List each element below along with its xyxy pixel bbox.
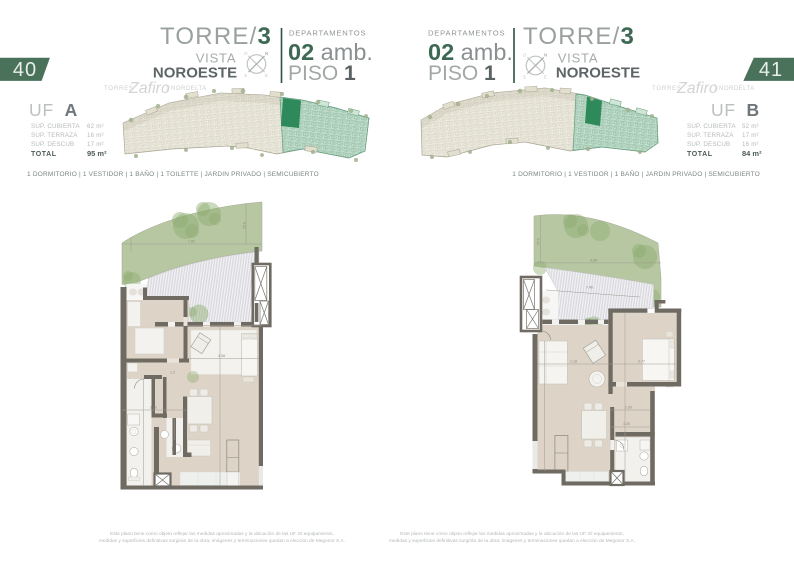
svg-text:S: S xyxy=(244,73,247,78)
svg-text:SUP. TERRAZA: SUP. TERRAZA xyxy=(687,132,734,139)
svg-text:17 m²: 17 m² xyxy=(742,132,759,139)
svg-text:|: | xyxy=(714,83,716,92)
svg-text:2.60: 2.60 xyxy=(625,406,632,410)
svg-text:7.46: 7.46 xyxy=(586,286,593,290)
svg-text:SUP. CUBIERTA: SUP. CUBIERTA xyxy=(31,123,80,130)
svg-text:NORDELTA: NORDELTA xyxy=(171,86,207,92)
svg-text:4.08: 4.08 xyxy=(218,354,225,358)
svg-text:N: N xyxy=(265,51,268,56)
svg-text:1.10: 1.10 xyxy=(150,406,157,410)
svg-text:95 m²: 95 m² xyxy=(87,149,107,158)
svg-text:NOROESTE: NOROESTE xyxy=(153,65,237,82)
svg-text:1 DORMITORIO | 1 VESTIDOR | 1: 1 DORMITORIO | 1 VESTIDOR | 1 BAÑO | JAR… xyxy=(512,169,760,178)
svg-text:SUP. TERRAZA: SUP. TERRAZA xyxy=(31,132,78,139)
svg-text:VISTA: VISTA xyxy=(196,51,237,66)
svg-text:7.80: 7.80 xyxy=(188,240,195,244)
svg-text:84 m²: 84 m² xyxy=(742,149,762,158)
svg-text:DEPARTAMENTOS: DEPARTAMENTOS xyxy=(289,29,366,38)
svg-text:NOROESTE: NOROESTE xyxy=(556,65,640,82)
svg-text:16 m²: 16 m² xyxy=(87,132,104,139)
svg-text:PISO 1: PISO 1 xyxy=(288,62,356,85)
svg-text:41: 41 xyxy=(759,59,783,81)
svg-text:TORRE/3: TORRE/3 xyxy=(160,23,272,50)
svg-text:VISTA: VISTA xyxy=(558,51,599,66)
svg-text:medidas y superficies definiti: medidas y superficies definitivas surgir… xyxy=(99,538,345,544)
svg-text:NORDELTA: NORDELTA xyxy=(719,86,755,92)
svg-text:SUP. DESCUB: SUP. DESCUB xyxy=(31,141,74,148)
svg-text:1 DORMITORIO | 1 VESTIDOR | 1: 1 DORMITORIO | 1 VESTIDOR | 1 BAÑO | 1 T… xyxy=(27,169,319,178)
svg-text:TORRE/3: TORRE/3 xyxy=(523,23,635,50)
svg-text:PISO 1: PISO 1 xyxy=(428,62,496,85)
svg-text:Zafiro: Zafiro xyxy=(676,80,718,97)
svg-text:UF B: UF B xyxy=(711,100,760,120)
svg-text:SUP. CUBIERTA: SUP. CUBIERTA xyxy=(687,123,736,130)
svg-text:16 m²: 16 m² xyxy=(742,141,759,148)
svg-text:S: S xyxy=(523,75,526,80)
svg-text:E: E xyxy=(265,73,268,78)
svg-text:52 m²: 52 m² xyxy=(742,123,759,130)
svg-text:1.30: 1.30 xyxy=(623,422,630,426)
svg-text:TOTAL: TOTAL xyxy=(687,151,713,158)
svg-text:E: E xyxy=(544,75,547,80)
svg-text:Zafiro: Zafiro xyxy=(128,80,170,97)
svg-text:DEPARTAMENTOS: DEPARTAMENTOS xyxy=(428,29,505,38)
svg-text:1.2: 1.2 xyxy=(170,371,175,375)
svg-text:3.77: 3.77 xyxy=(638,360,645,364)
svg-text:SUP. DESCUB: SUP. DESCUB xyxy=(687,141,730,148)
svg-text:1.18: 1.18 xyxy=(570,360,577,364)
svg-text:N: N xyxy=(544,53,547,58)
svg-text:40: 40 xyxy=(13,59,37,81)
svg-text:3.12: 3.12 xyxy=(536,238,540,245)
svg-text:Este plano tiene como objeto r: Este plano tiene como objeto reflejar la… xyxy=(400,531,624,537)
svg-text:17 m²: 17 m² xyxy=(87,141,104,148)
svg-text:O: O xyxy=(244,51,248,56)
svg-text:|: | xyxy=(166,83,168,92)
svg-text:UF A: UF A xyxy=(29,100,78,120)
svg-text:Este plano tiene como objeto r: Este plano tiene como objeto reflejar la… xyxy=(110,531,334,537)
svg-text:O: O xyxy=(523,53,527,58)
svg-text:medidas y superficies definiti: medidas y superficies definitivas surgir… xyxy=(389,538,635,544)
svg-text:5.68: 5.68 xyxy=(590,259,597,263)
svg-text:TOTAL: TOTAL xyxy=(31,151,57,158)
svg-text:3.52: 3.52 xyxy=(242,222,246,229)
svg-text:62 m²: 62 m² xyxy=(87,123,104,130)
